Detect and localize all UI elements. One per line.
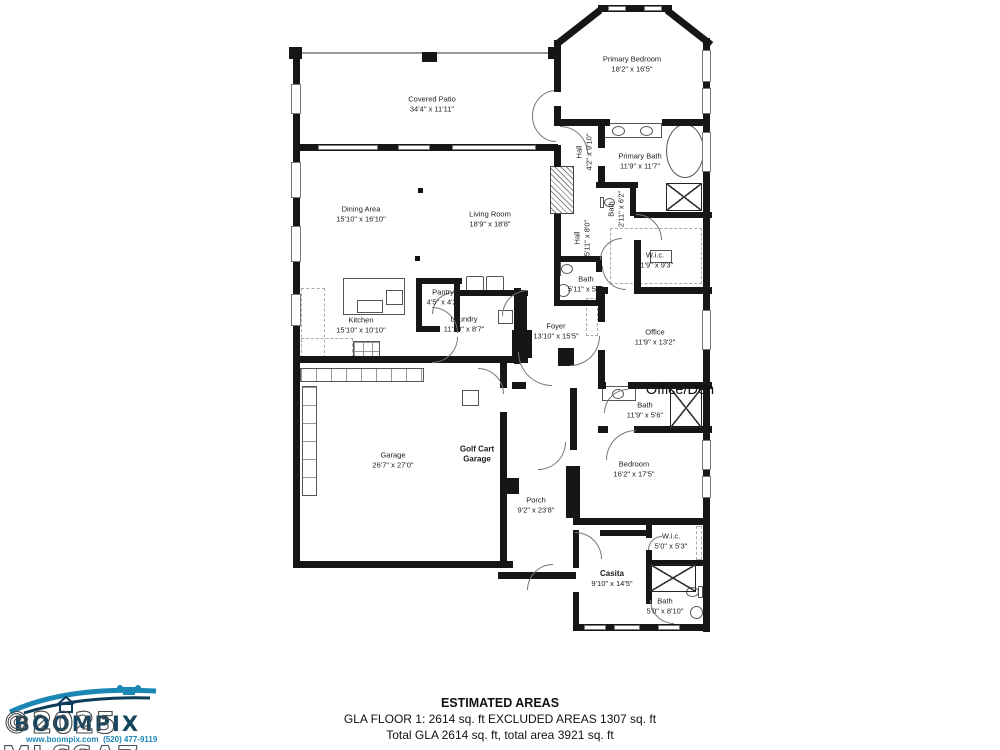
wall — [646, 524, 652, 538]
room-label-covered-patio: Covered Patio34'4" x 11'11" — [408, 94, 456, 114]
window — [702, 88, 711, 114]
window — [291, 162, 301, 198]
window — [452, 145, 536, 150]
wall — [554, 119, 610, 126]
toilet-icon — [561, 264, 573, 274]
wall — [573, 592, 579, 624]
wall — [598, 294, 605, 322]
window — [644, 6, 662, 11]
garage-storage — [302, 386, 317, 496]
floorplan-screenshot: Covered Patio34'4" x 11'11"Primary Bedro… — [0, 0, 1000, 750]
room-label-kitchen: Kitchen15'10" x 10'10" — [336, 315, 385, 335]
wall — [598, 382, 606, 389]
sink-icon — [640, 126, 653, 136]
door-arc — [606, 430, 636, 460]
shower-icon — [650, 564, 696, 592]
wall — [630, 188, 636, 216]
bay-wall-left — [554, 8, 602, 48]
room-label-bath-3: Bath5'11" x 5'5" — [568, 274, 604, 294]
room-label-hall-2: Hall5'11" x 8'0" — [572, 220, 592, 256]
wall — [598, 426, 608, 433]
wall — [505, 478, 519, 494]
wall — [554, 300, 602, 306]
office-den-annotation: Office/Den — [646, 382, 714, 398]
wall — [634, 287, 712, 294]
room-label-laundry: Laundry11'10" x 8'7" — [444, 314, 485, 334]
door-arc — [518, 352, 552, 386]
sink-icon — [612, 126, 625, 136]
wall — [512, 382, 526, 389]
garage-steps — [300, 368, 424, 382]
wall — [422, 52, 437, 62]
patio-double-door-arc — [532, 90, 556, 142]
wall — [598, 350, 605, 384]
room-label-hall-1: Hall4'2" x 9'10" — [574, 134, 594, 171]
room-label-wic-2: W.i.c.5'0" x 5'3" — [655, 531, 688, 551]
wall — [570, 388, 577, 450]
window — [608, 6, 626, 11]
wic2-shelving — [696, 526, 702, 560]
room-label-bath-4: Bath11'9" x 5'6" — [627, 400, 663, 420]
kitchen-counter — [301, 338, 353, 358]
room-label-casita: Casita9'10" x 14'5" — [591, 569, 632, 589]
room-label-office: Office11'9" x 13'2" — [635, 327, 676, 347]
company-website: www.boompix.com — [26, 735, 99, 744]
door-arc — [538, 442, 566, 470]
wall — [296, 356, 528, 363]
room-label-wic-1: W.i.c.11'9" x 9'3" — [637, 250, 673, 270]
company-phone: (520) 477-9119 — [103, 735, 157, 744]
wall — [566, 466, 580, 518]
wall — [554, 214, 561, 258]
hatch-chase — [550, 166, 574, 214]
window — [318, 145, 378, 150]
window — [702, 310, 711, 350]
room-label-primary-bedroom: Primary Bedroom18'2" x 16'5" — [603, 54, 661, 74]
photographer-branding: BOOMPIX ©2025 MLSSAZ www.boompix.com (52… — [0, 682, 260, 750]
window — [702, 440, 711, 470]
wall — [548, 47, 561, 59]
window — [291, 84, 301, 114]
room-label-primary-bath: Primary Bath11'9" x 11'7" — [618, 151, 661, 171]
wall — [573, 518, 710, 525]
wall — [600, 530, 646, 536]
room-label-living-room: Living Room18'9" x 18'8" — [469, 209, 511, 229]
room-label-pantry: Pantry4'5" x 4'2" — [427, 287, 460, 307]
window — [398, 145, 430, 150]
room-label-bedroom: Bedroom16'2" x 17'5" — [613, 459, 654, 479]
room-label-golf-cart-garage: Golf Cart Garage — [460, 445, 494, 466]
door-arc — [527, 564, 553, 590]
shower-icon — [666, 183, 702, 211]
room-label-porch: Porch9'2" x 23'8" — [518, 495, 555, 515]
bathtub-icon — [666, 124, 704, 178]
room-label-bath-2: Bath2'11" x 6'2" — [606, 191, 626, 227]
window — [702, 50, 711, 82]
wall — [554, 256, 602, 262]
wall — [293, 561, 513, 568]
water-heater — [462, 390, 479, 406]
structural-post — [415, 256, 420, 261]
room-label-foyer: Foyer13'10" x 15'5" — [533, 321, 578, 341]
wall — [289, 47, 302, 59]
door-arc — [575, 532, 602, 559]
company-contact: www.boompix.com (520) 477-9119 — [26, 735, 157, 744]
window — [291, 226, 301, 262]
structural-post — [418, 188, 423, 193]
room-label-garage: Garage26'7" x 27'0" — [372, 450, 413, 470]
window — [291, 294, 301, 326]
window — [614, 625, 640, 630]
room-label-bath-5: Bath5'0" x 8'10" — [647, 596, 684, 616]
island-cooktop — [386, 290, 403, 305]
window — [584, 625, 606, 630]
sink-icon — [690, 606, 703, 619]
wall — [554, 258, 560, 302]
wall — [416, 278, 422, 332]
island-sink — [357, 300, 383, 313]
window — [702, 132, 711, 172]
window — [658, 625, 680, 630]
wall — [598, 126, 605, 148]
window — [702, 476, 711, 498]
door-arc — [600, 238, 622, 260]
room-label-dining-area: Dining Area15'10" x 16'10" — [336, 204, 385, 224]
